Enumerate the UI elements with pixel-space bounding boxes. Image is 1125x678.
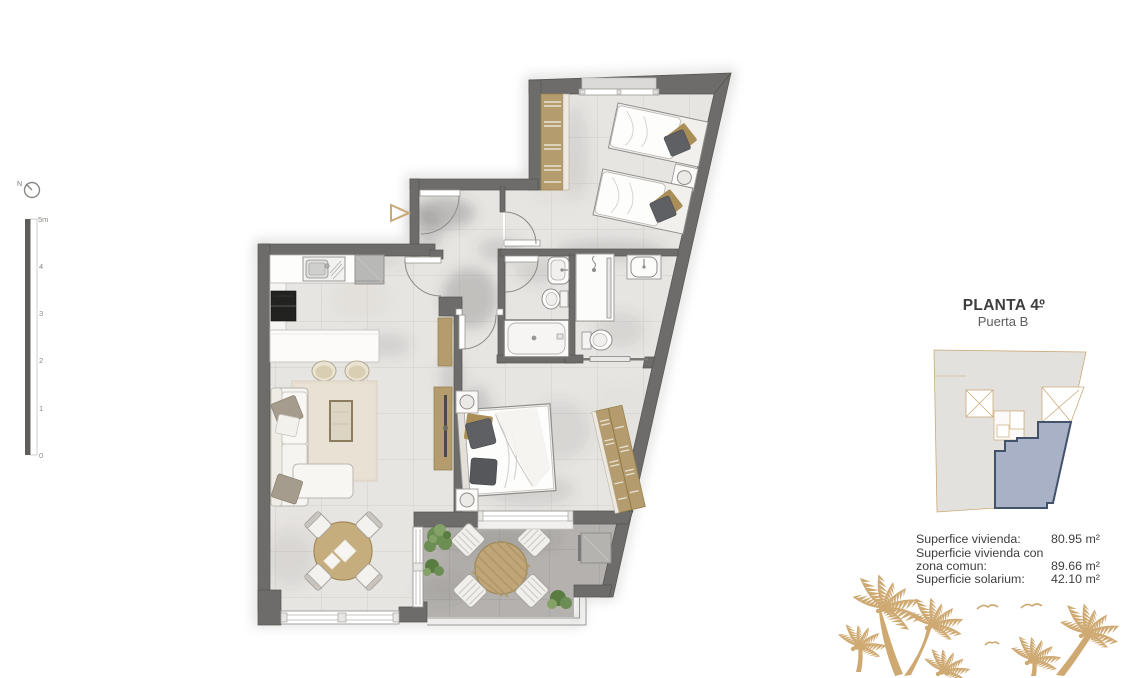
svg-text:5m: 5m [38, 215, 48, 224]
svg-text:89.66 m²: 89.66 m² [1051, 559, 1100, 573]
svg-text:Superfice vivienda:: Superfice vivienda: [916, 532, 1021, 546]
svg-text:zona comun:: zona comun: [916, 559, 987, 573]
svg-text:42.10 m²: 42.10 m² [1051, 572, 1100, 586]
svg-text:PLANTA 4º: PLANTA 4º [963, 297, 1045, 314]
svg-text:0: 0 [39, 451, 43, 460]
svg-text:3: 3 [39, 309, 43, 318]
svg-text:N: N [17, 181, 22, 188]
svg-text:1: 1 [39, 404, 43, 413]
svg-text:Puerta B: Puerta B [978, 314, 1029, 329]
svg-text:80.95 m²: 80.95 m² [1051, 532, 1100, 546]
svg-text:Superficie solarium:: Superficie solarium: [916, 572, 1025, 586]
svg-text:Superficie vivienda con: Superficie vivienda con [916, 546, 1044, 560]
svg-text:4: 4 [39, 262, 43, 271]
svg-text:2: 2 [39, 356, 43, 365]
